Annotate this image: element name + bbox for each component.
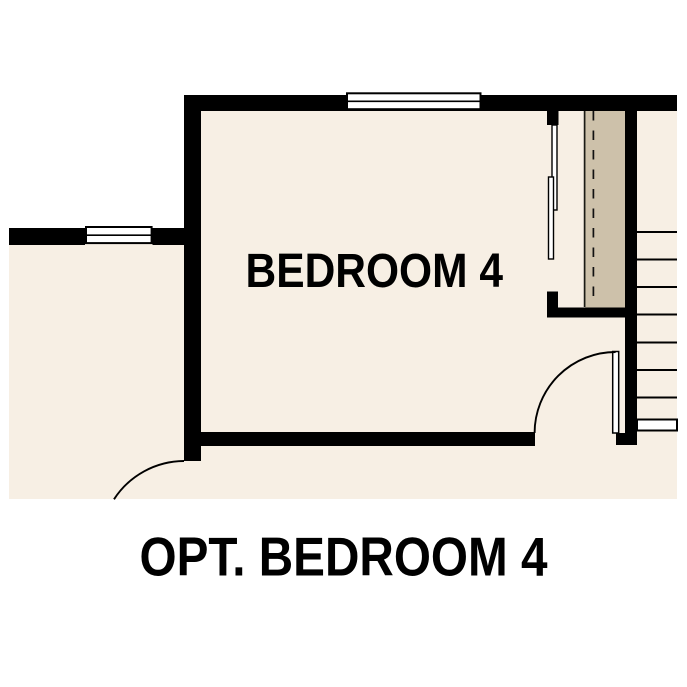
svg-text:OPT. BEDROOM 4: OPT. BEDROOM 4 [140, 525, 548, 587]
svg-text:BEDROOM 4: BEDROOM 4 [246, 244, 504, 298]
